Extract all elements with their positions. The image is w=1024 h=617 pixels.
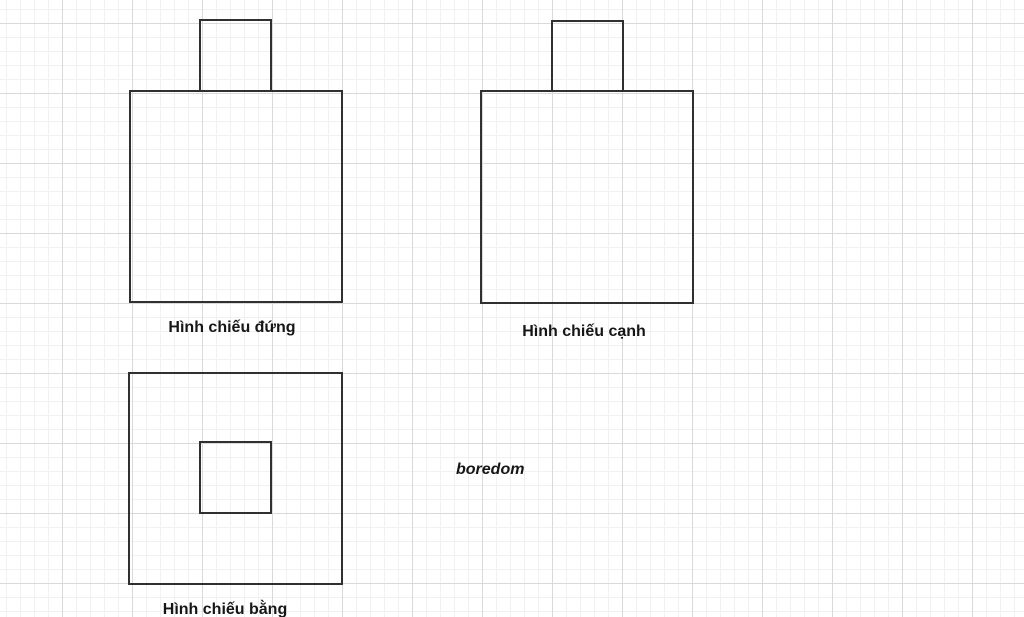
front-view-label[interactable]: Hình chiếu đứng [168,318,295,337]
boredom-annotation-text[interactable]: boredom [456,460,524,479]
top-view-label[interactable]: Hình chiếu bằng [163,600,287,617]
side-view-tab-rect[interactable] [551,20,624,92]
front-view-body-rect[interactable] [129,90,343,303]
diagram-canvas[interactable]: Hình chiếu đứng Hình chiếu cạnh Hình chi… [0,0,1024,617]
top-view-inner-rect[interactable] [199,441,272,514]
front-view-tab-rect[interactable] [199,19,272,92]
side-view-body-rect[interactable] [480,90,694,304]
side-view-label[interactable]: Hình chiếu cạnh [522,322,646,341]
